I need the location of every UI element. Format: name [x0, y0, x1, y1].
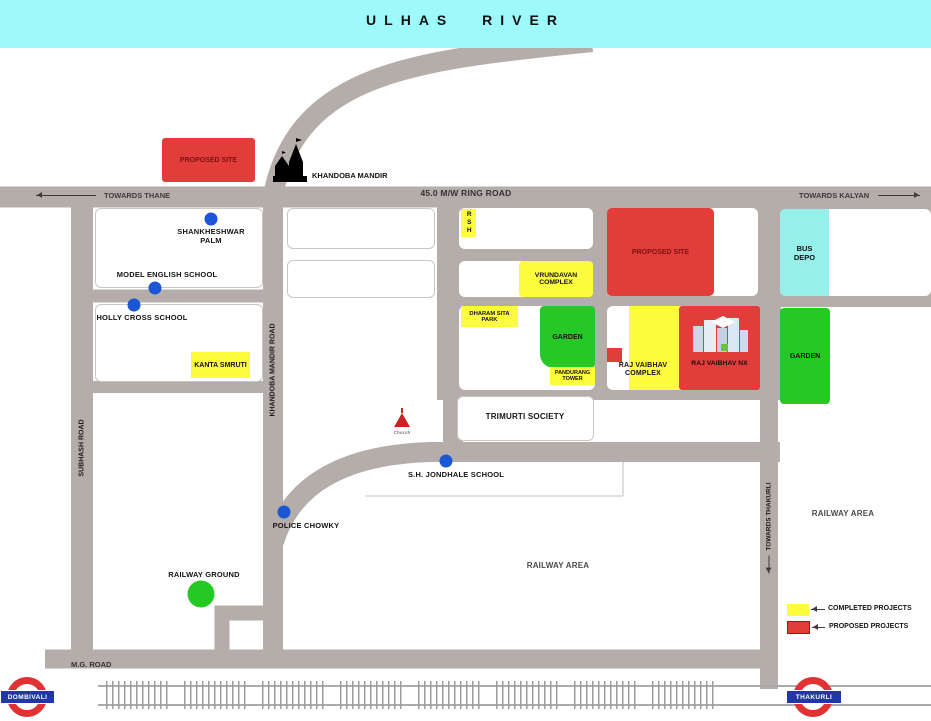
- marker-shankheshwar-palm: [205, 213, 218, 226]
- shankheshwar-palm-label: SHANKHESHWAR PALM: [177, 227, 244, 245]
- rail-ticks: [496, 681, 558, 709]
- rail-ticks: [184, 681, 246, 709]
- rsh-label: RSH: [465, 211, 472, 235]
- vrundavan-complex-label: VRUNDAVAN COMPLEX: [535, 272, 577, 286]
- garden-east-box: GARDEN: [780, 308, 830, 404]
- legend-completed-label: COMPLETED PROJECTS: [828, 605, 912, 613]
- dombivali-station-label: DOMBIVALI: [8, 694, 48, 701]
- marker-holly-cross-school: [128, 299, 141, 312]
- church-label: Church: [394, 430, 411, 435]
- raj-vaibhav-nx-label: RAJ VAIBHAV NX: [691, 360, 747, 367]
- river-label: ULHAS RIVER: [0, 12, 931, 28]
- subhash-road-text: SUBHASH ROAD: [79, 419, 86, 476]
- ulhas-river-band: ULHAS RIVER: [0, 0, 931, 48]
- dharam-sita-park-label: DHARAM SITA PARK: [469, 311, 509, 323]
- model-english-school-label: MODEL ENGLISH SCHOOL: [117, 270, 218, 279]
- khandoba-road-text: KHANDOBA MANDIR ROAD: [270, 323, 277, 416]
- parcel-boundary-line: [365, 462, 623, 496]
- rsh-box: RSH: [461, 209, 476, 237]
- proposed-site-west-box: PROPOSED SITE: [162, 138, 255, 182]
- bus-depo-label: BUS DEPO: [794, 244, 815, 262]
- marker-jondhale-school: [440, 455, 453, 468]
- towards-thakurli-text: TOWARDS THAKURLI: [766, 482, 773, 550]
- khandoba-mandir-label: KHANDOBA MANDIR: [312, 171, 388, 180]
- proposed-site-east-label: PROPOSED SITE: [632, 249, 689, 256]
- legend-proposed-swatch: [787, 621, 810, 634]
- bus-depo-box: BUS DEPO: [780, 209, 829, 296]
- towards-kalyan-label: TOWARDS KALYAN: [799, 191, 869, 200]
- small-red-box: [607, 348, 622, 362]
- towards-thakurli-label: TOWARDS THAKURLI: [766, 482, 773, 573]
- railway-area-east-label: RAILWAY AREA: [812, 509, 875, 519]
- legend-completed-arrow: [811, 609, 825, 610]
- trimurti-society-label: TRIMURTI SOCIETY: [486, 412, 565, 422]
- garden-east-label: GARDEN: [790, 353, 820, 360]
- proposed-site-west-label: PROPOSED SITE: [180, 157, 237, 164]
- rail-ticks: [106, 681, 168, 709]
- jondhale-school-label: S.H. JONDHALE SCHOOL: [408, 470, 504, 479]
- legend-proposed-label: PROPOSED PROJECTS: [829, 623, 908, 631]
- marker-model-english-school: [149, 282, 162, 295]
- dharam-sita-park-box: DHARAM SITA PARK: [461, 306, 518, 327]
- dombivali-station-badge: DOMBIVALI: [0, 690, 55, 704]
- towards-thane-label: TOWARDS THANE: [104, 191, 170, 200]
- rail-ticks: [262, 681, 324, 709]
- ring-road-label: 45.0 M/W RING ROAD: [421, 188, 512, 198]
- pandurang-tower-label: PANDURANG TOWER: [555, 370, 590, 382]
- thakurli-station-badge: THAKURLI: [786, 690, 842, 704]
- marker-police-chowky: [278, 506, 291, 519]
- rail-ticks: [652, 681, 714, 709]
- rail-ticks: [574, 681, 636, 709]
- garden-mid-label: GARDEN: [552, 334, 582, 341]
- khandoba-road-label: KHANDOBA MANDIR ROAD: [270, 323, 277, 416]
- raj-vaibhav-complex-label: RAJ VAIBHAV COMPLEX: [619, 362, 668, 379]
- parcel-rsh: [459, 208, 593, 249]
- arrow-towards-thane: [36, 195, 96, 196]
- kanta-smruti-box: KANTA SMRUTI: [191, 352, 250, 378]
- marker-railway-ground: [188, 581, 215, 608]
- kanta-smruti-label: KANTA SMRUTI: [194, 362, 247, 369]
- raj-vaibhav-nx-box: RAJ VAIBHAV NX: [679, 306, 760, 390]
- rail-ticks: [340, 681, 402, 709]
- pandurang-tower-box: PANDURANG TOWER: [550, 367, 595, 385]
- road-trimurti-south: [274, 452, 780, 542]
- mg-road-label: M.G. ROAD: [71, 660, 111, 669]
- railway-ground-label: RAILWAY GROUND: [168, 570, 240, 579]
- legend-completed-swatch: [787, 604, 809, 616]
- parcel-west-1: [287, 208, 435, 249]
- arrow-towards-kalyan: [878, 195, 920, 196]
- rail-ticks: [418, 681, 480, 709]
- holly-cross-school-label: HOLLY CROSS SCHOOL: [96, 313, 187, 322]
- police-chowky-label: POLICE CHOWKY: [273, 521, 340, 530]
- legend-proposed-arrow: [812, 627, 825, 628]
- church-icon: [394, 413, 410, 427]
- subhash-road-label: SUBHASH ROAD: [79, 419, 86, 476]
- proposed-site-east-box: PROPOSED SITE: [607, 208, 714, 296]
- thakurli-station-label: THAKURLI: [796, 694, 832, 701]
- parcel-west-2: [287, 260, 435, 298]
- arrow-towards-thakurli: [769, 556, 770, 574]
- garden-mid-box: GARDEN: [540, 306, 595, 368]
- railway-area-south-label: RAILWAY AREA: [527, 561, 590, 571]
- location-map: ULHAS RIVER PROPOSED SITE RSH VRUNDAVAN …: [0, 0, 931, 721]
- vrundavan-complex-box: VRUNDAVAN COMPLEX: [519, 261, 593, 297]
- khandoba-mandir-icon: [272, 136, 310, 184]
- buildings-icon: [691, 312, 749, 356]
